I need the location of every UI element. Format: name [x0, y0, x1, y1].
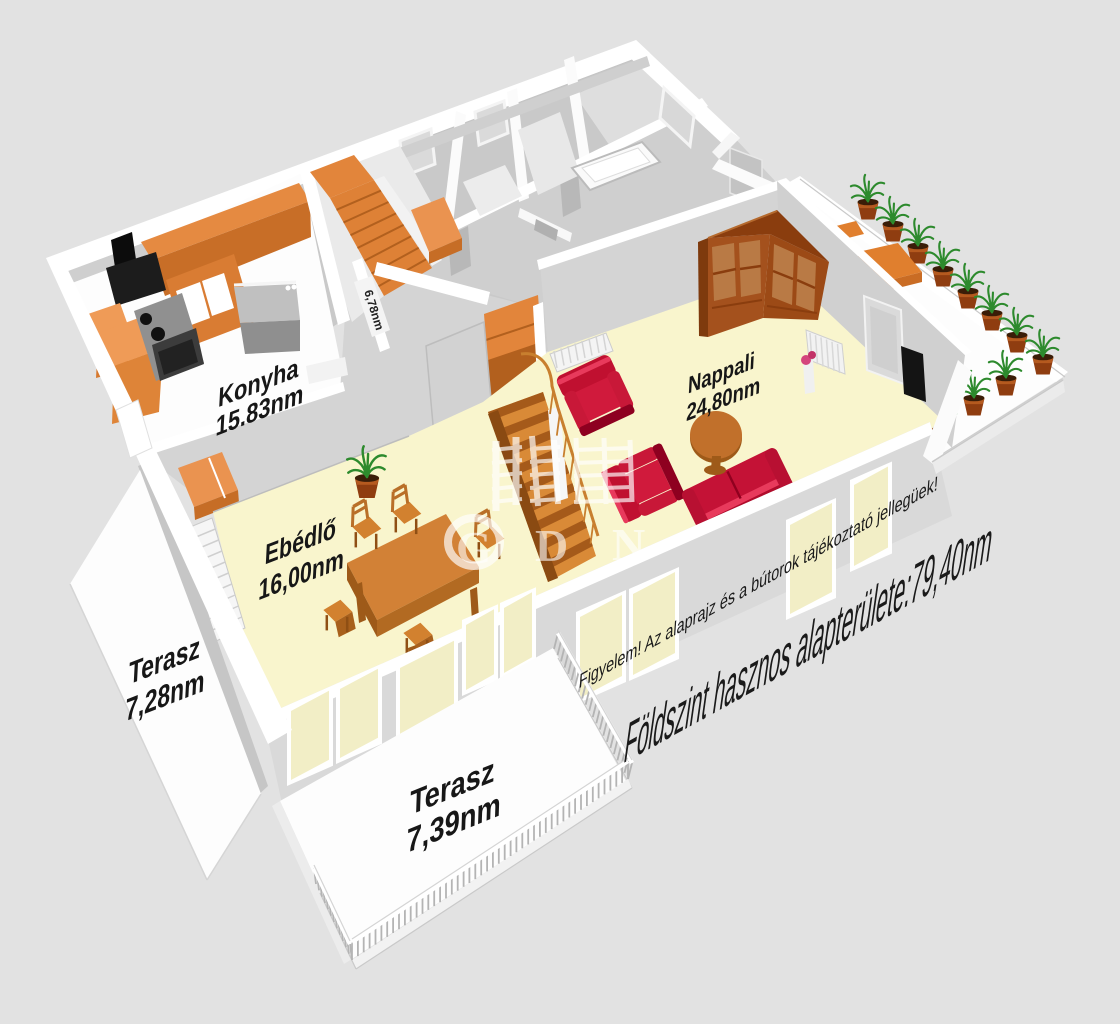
- svg-text:G: G: [456, 522, 492, 573]
- svg-text:D: D: [535, 520, 568, 571]
- svg-text:N: N: [612, 519, 645, 570]
